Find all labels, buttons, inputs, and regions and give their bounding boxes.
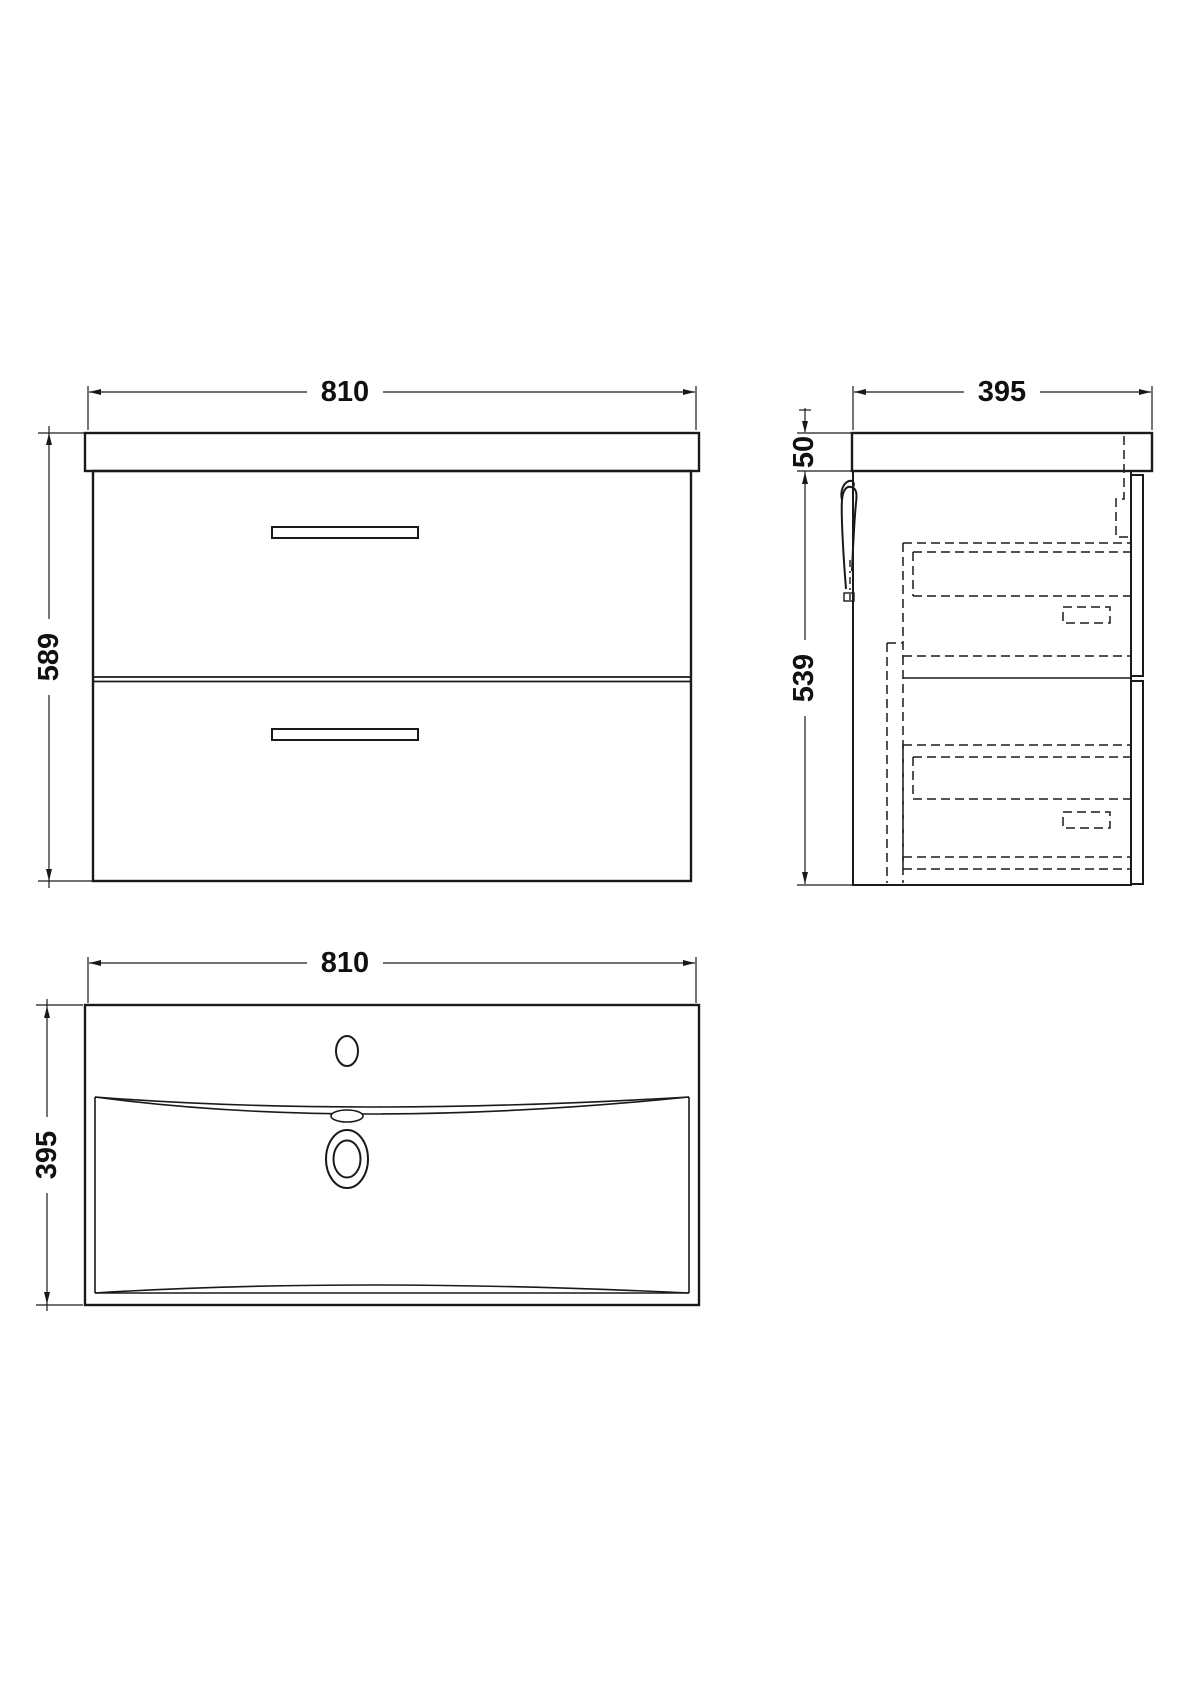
technical-drawing-sheet: 810 589 [0, 0, 1200, 1698]
plan-bowl-bottom-inner-edge [95, 1285, 689, 1293]
front-width-dimension-label: 810 [321, 376, 369, 408]
front-elevation-view [85, 433, 699, 881]
side-lower-drawer-front [1131, 681, 1143, 884]
side-countertop [852, 433, 1152, 471]
plan-width-dimension-label: 810 [321, 947, 369, 979]
side-lower-drawer-runner [1063, 812, 1110, 828]
wall-bracket-hook [842, 487, 857, 589]
side-hidden-front-step [1116, 436, 1131, 537]
side-top-thickness-dimension-label: 50 [788, 436, 820, 468]
drain-inner-ring [334, 1141, 361, 1178]
side-upper-drawer-front [1131, 475, 1143, 676]
side-depth-dimension-label: 395 [978, 376, 1026, 408]
side-elevation-view [852, 433, 1152, 885]
side-hidden-lines [887, 436, 1131, 883]
technical-drawing-canvas: 810 589 [0, 0, 1200, 1698]
side-body-height-dimension-label: 539 [788, 654, 820, 702]
front-width-dimension [88, 377, 696, 430]
front-lower-drawer-handle [272, 729, 418, 740]
plan-basin-outline [85, 1005, 699, 1305]
overflow-hole [331, 1110, 363, 1122]
side-upper-drawer-runner [1063, 607, 1110, 623]
front-height-dimension-label: 589 [33, 633, 65, 681]
drain-outer-ring [326, 1130, 368, 1188]
side-wall-bracket [841, 481, 856, 601]
plan-bowl-top-inner-edge [95, 1097, 689, 1114]
basin-plan-view [85, 1005, 699, 1305]
tap-hole [336, 1036, 358, 1066]
front-countertop [85, 433, 699, 471]
front-upper-drawer-handle [272, 527, 418, 538]
plan-width-dimension [88, 948, 696, 1003]
front-cabinet-body [93, 471, 691, 881]
plan-depth-dimension-label: 395 [31, 1131, 63, 1179]
